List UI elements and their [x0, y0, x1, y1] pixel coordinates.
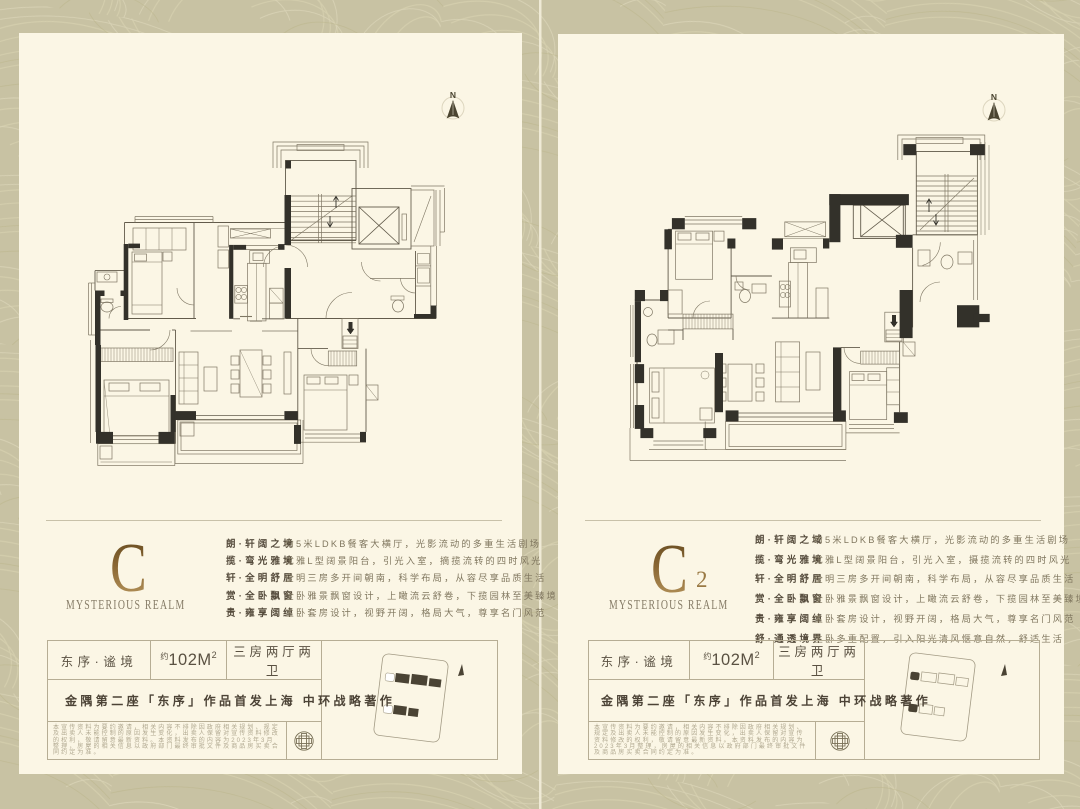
- svg-text:N: N: [450, 90, 456, 100]
